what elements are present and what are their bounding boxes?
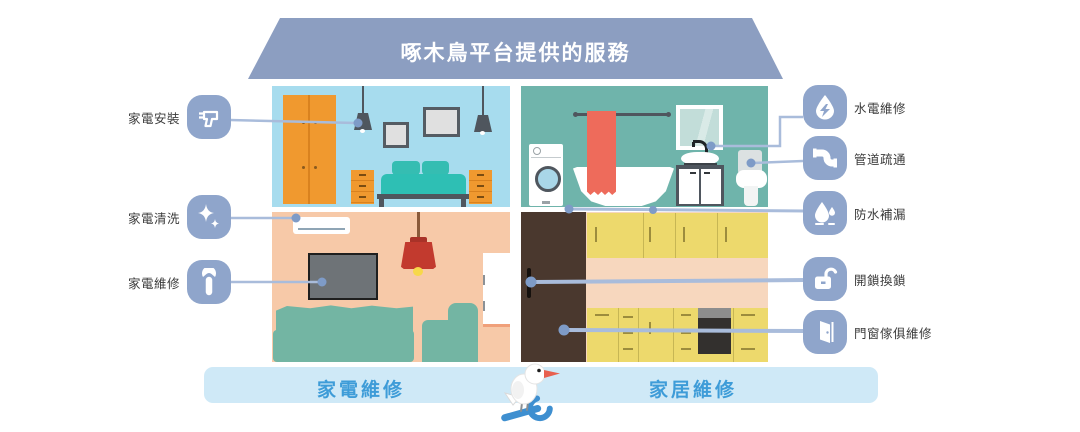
wardrobe-knob	[314, 166, 317, 169]
service-label: 家電維修	[128, 273, 180, 292]
doorframe-mark	[483, 301, 485, 311]
bed-leg	[461, 199, 466, 207]
hanging-towel	[587, 111, 616, 195]
cabinet-seam	[638, 308, 639, 362]
service-row-appliance-cleaning: 家電清洗	[128, 195, 231, 239]
drawer-handle	[359, 185, 366, 187]
picture-frame	[423, 107, 460, 137]
cabinet-handle	[649, 322, 651, 334]
drawer-handle	[359, 196, 366, 198]
bed-mattress	[381, 174, 466, 195]
drawer-handle	[595, 314, 609, 316]
cabinet-seam	[717, 213, 718, 258]
infographic-canvas: 啄木鳥平台提供的服務	[0, 0, 1080, 432]
service-label: 家電安裝	[128, 108, 180, 127]
waterproof-drops-icon	[803, 191, 847, 235]
drawer-handle	[623, 348, 633, 350]
cabinet-handle	[683, 227, 685, 242]
upper-cabinets	[587, 213, 768, 258]
pendant-lamp-bulb	[360, 129, 365, 133]
room-bedroom	[272, 86, 510, 207]
room-kitchen	[521, 212, 768, 362]
drawer-handle	[681, 332, 691, 334]
pendant-lamp-bulb	[480, 131, 485, 135]
oven	[698, 308, 731, 354]
armchair-seat	[422, 320, 478, 362]
vanity-door	[701, 169, 721, 204]
pendant-lamp-shade	[474, 115, 492, 132]
wardrobe-knob	[302, 166, 305, 169]
drawer-handle	[477, 185, 484, 187]
towel-rod-end	[666, 112, 671, 117]
service-row-pipe-dredging: 管道疏通	[803, 136, 906, 180]
bed-frame	[377, 194, 469, 199]
cabinet-seam	[675, 213, 676, 258]
cabinet-seam	[618, 308, 619, 362]
woodpecker-mascot-icon	[492, 360, 562, 430]
towel-rod-end	[573, 112, 578, 117]
vanity-cabinet	[676, 165, 724, 206]
service-row-plumbing-electric: 水電維修	[803, 85, 906, 129]
wrench-icon	[187, 260, 231, 304]
diagram-title: 啄木鳥平台提供的服務	[401, 37, 631, 67]
cabinet-seam	[673, 308, 674, 362]
pendant-lamp-cord	[362, 86, 364, 114]
lamp-bulb	[413, 267, 423, 276]
waterdrop-bolt-icon	[803, 85, 847, 129]
pendant-lamp-cord	[482, 86, 484, 116]
service-label: 管道疏通	[854, 149, 906, 168]
service-row-door-furniture-repair: 門窗傢俱維修	[803, 310, 932, 354]
room-bathroom	[521, 86, 768, 207]
washer-knob	[533, 147, 541, 155]
sparkle-clean-icon	[187, 195, 231, 239]
ac-vent-line	[298, 228, 345, 230]
sofa-seat	[273, 330, 414, 362]
drawer-handle	[359, 174, 366, 176]
faucet-spout-tip	[692, 142, 695, 147]
doorframe-mark	[483, 275, 485, 285]
drawer-handle	[741, 348, 755, 350]
cabinet-handle	[725, 227, 727, 242]
kitchen-door	[521, 212, 586, 362]
tv-screen	[308, 253, 378, 300]
air-conditioner	[293, 217, 350, 234]
bed-pillow	[392, 161, 420, 175]
cabinet-handle	[649, 227, 651, 242]
pendant-lamp-shade	[354, 113, 372, 130]
drawer-handle	[623, 316, 633, 318]
service-label: 門窗傢俱維修	[854, 323, 932, 342]
category-appliance-repair: 家電維修	[317, 375, 405, 402]
cabinet-seam	[733, 308, 734, 362]
toilet-pedestal	[744, 186, 758, 206]
doorway	[483, 253, 510, 325]
drawer-handle	[681, 348, 691, 350]
cabinet-seam	[643, 213, 644, 258]
vanity-door	[679, 169, 699, 204]
pipe-icon	[803, 136, 847, 180]
service-label: 開鎖換鎖	[854, 270, 906, 289]
service-label: 水電維修	[854, 98, 906, 117]
service-row-lock-change: 開鎖換鎖	[803, 257, 906, 301]
category-home-repair: 家居維修	[649, 375, 737, 402]
service-row-waterproofing: 防水補漏	[803, 191, 906, 235]
washer-panel-line	[531, 157, 561, 158]
service-label: 家電清洗	[128, 208, 180, 227]
oven-control-panel	[698, 308, 731, 318]
lamp-shade	[401, 242, 436, 269]
wardrobe-knob	[314, 121, 317, 124]
service-row-appliance-repair: 家電維修	[128, 260, 231, 304]
wardrobe	[283, 95, 336, 204]
washing-machine	[529, 144, 563, 206]
bed-pillow	[422, 161, 449, 175]
bed-leg	[379, 199, 384, 207]
room-livingroom	[272, 212, 510, 362]
house-roof: 啄木鳥平台提供的服務	[248, 18, 783, 79]
door-handle	[690, 172, 696, 174]
drawer-handle	[477, 196, 484, 198]
nightstand	[469, 170, 492, 204]
open-lock-icon	[803, 257, 847, 301]
drawer-handle	[477, 174, 484, 176]
drawer-handle	[681, 314, 691, 316]
wardrobe-knob	[302, 121, 305, 124]
drawer-handle	[623, 332, 633, 334]
washer-door	[535, 166, 561, 192]
lamp-cord	[417, 212, 420, 239]
cabinet-handle	[595, 227, 597, 242]
door-icon	[803, 310, 847, 354]
washer-foot	[542, 201, 550, 204]
service-label: 防水補漏	[854, 204, 906, 223]
nightstand	[351, 170, 374, 204]
drawer-handle	[741, 314, 755, 316]
doorway-threshold	[483, 324, 510, 327]
wardrobe-door-seam	[308, 95, 310, 204]
service-row-appliance-install: 家電安裝	[128, 95, 231, 139]
door-handle	[527, 268, 531, 298]
drill-icon	[187, 95, 231, 139]
lower-cabinets	[587, 308, 768, 362]
door-handle	[704, 172, 710, 174]
picture-frame	[383, 122, 409, 148]
